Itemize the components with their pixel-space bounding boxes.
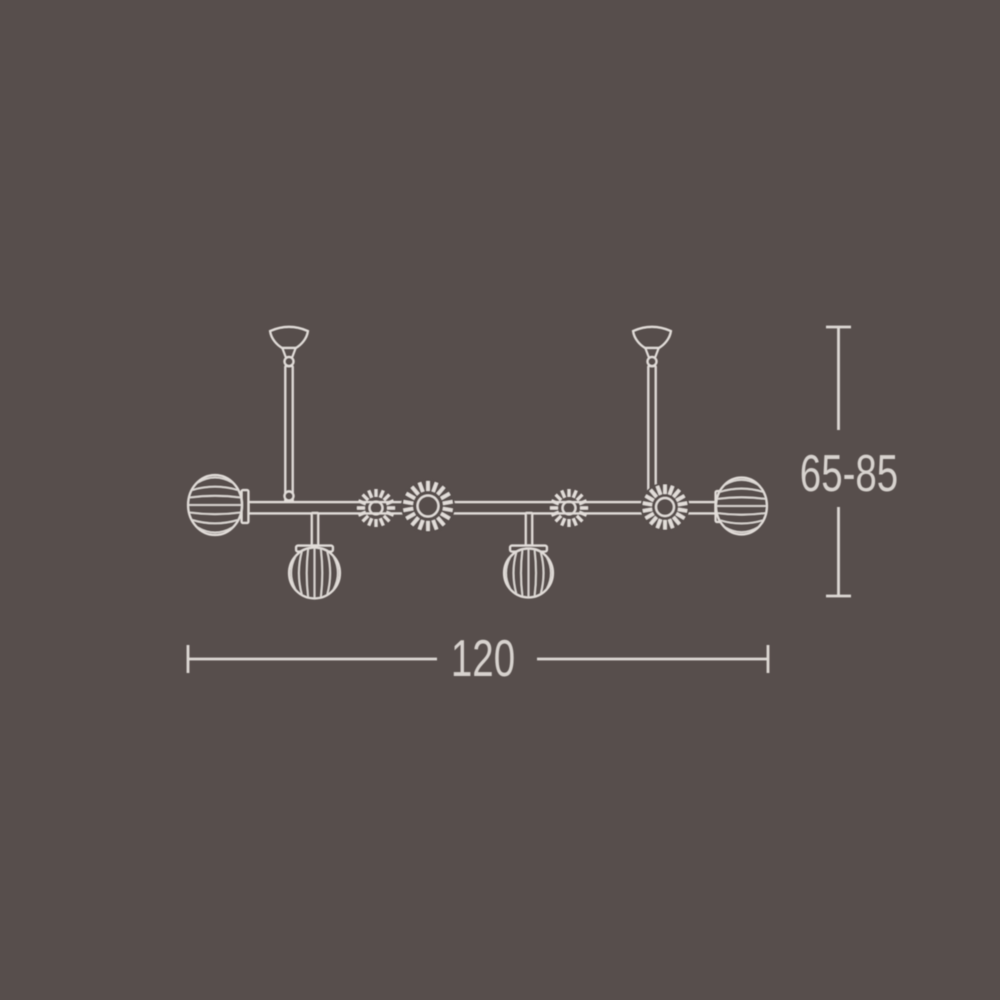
canopy-bell-icon bbox=[270, 327, 308, 348]
pendant-globe-right bbox=[504, 513, 553, 598]
pendant-rod bbox=[312, 513, 319, 547]
canopy-finial-ball bbox=[284, 357, 293, 366]
end-globe-right bbox=[716, 478, 768, 535]
canopy-finial-ring bbox=[647, 357, 656, 366]
height-dimension-label: 65-85 bbox=[800, 444, 898, 502]
rosette-shade-large-1 bbox=[401, 479, 455, 533]
pendant-rod bbox=[526, 513, 533, 547]
rosette-shade-large-2 bbox=[641, 483, 690, 532]
rod-joint-ball bbox=[284, 491, 293, 500]
diagram-canvas: 120 65-85 bbox=[0, 0, 1000, 1000]
suspension-rod-left bbox=[285, 366, 293, 503]
canopy-neck bbox=[646, 349, 659, 357]
canopy-bell-icon bbox=[633, 327, 671, 348]
suspension-rod-right bbox=[648, 366, 656, 503]
width-dimension-label: 120 bbox=[451, 629, 515, 687]
canopy-neck bbox=[283, 349, 296, 357]
end-globe-left bbox=[188, 475, 249, 535]
diagram-page: 120 65-85 bbox=[0, 0, 1000, 1000]
height-dimension: 65-85 bbox=[800, 327, 898, 596]
pendant-globe-left bbox=[289, 513, 340, 599]
ceiling-canopy-left bbox=[270, 327, 308, 503]
width-dimension: 120 bbox=[188, 629, 768, 687]
chandelier-drawing bbox=[188, 327, 767, 599]
ceiling-canopy-right bbox=[633, 327, 671, 503]
